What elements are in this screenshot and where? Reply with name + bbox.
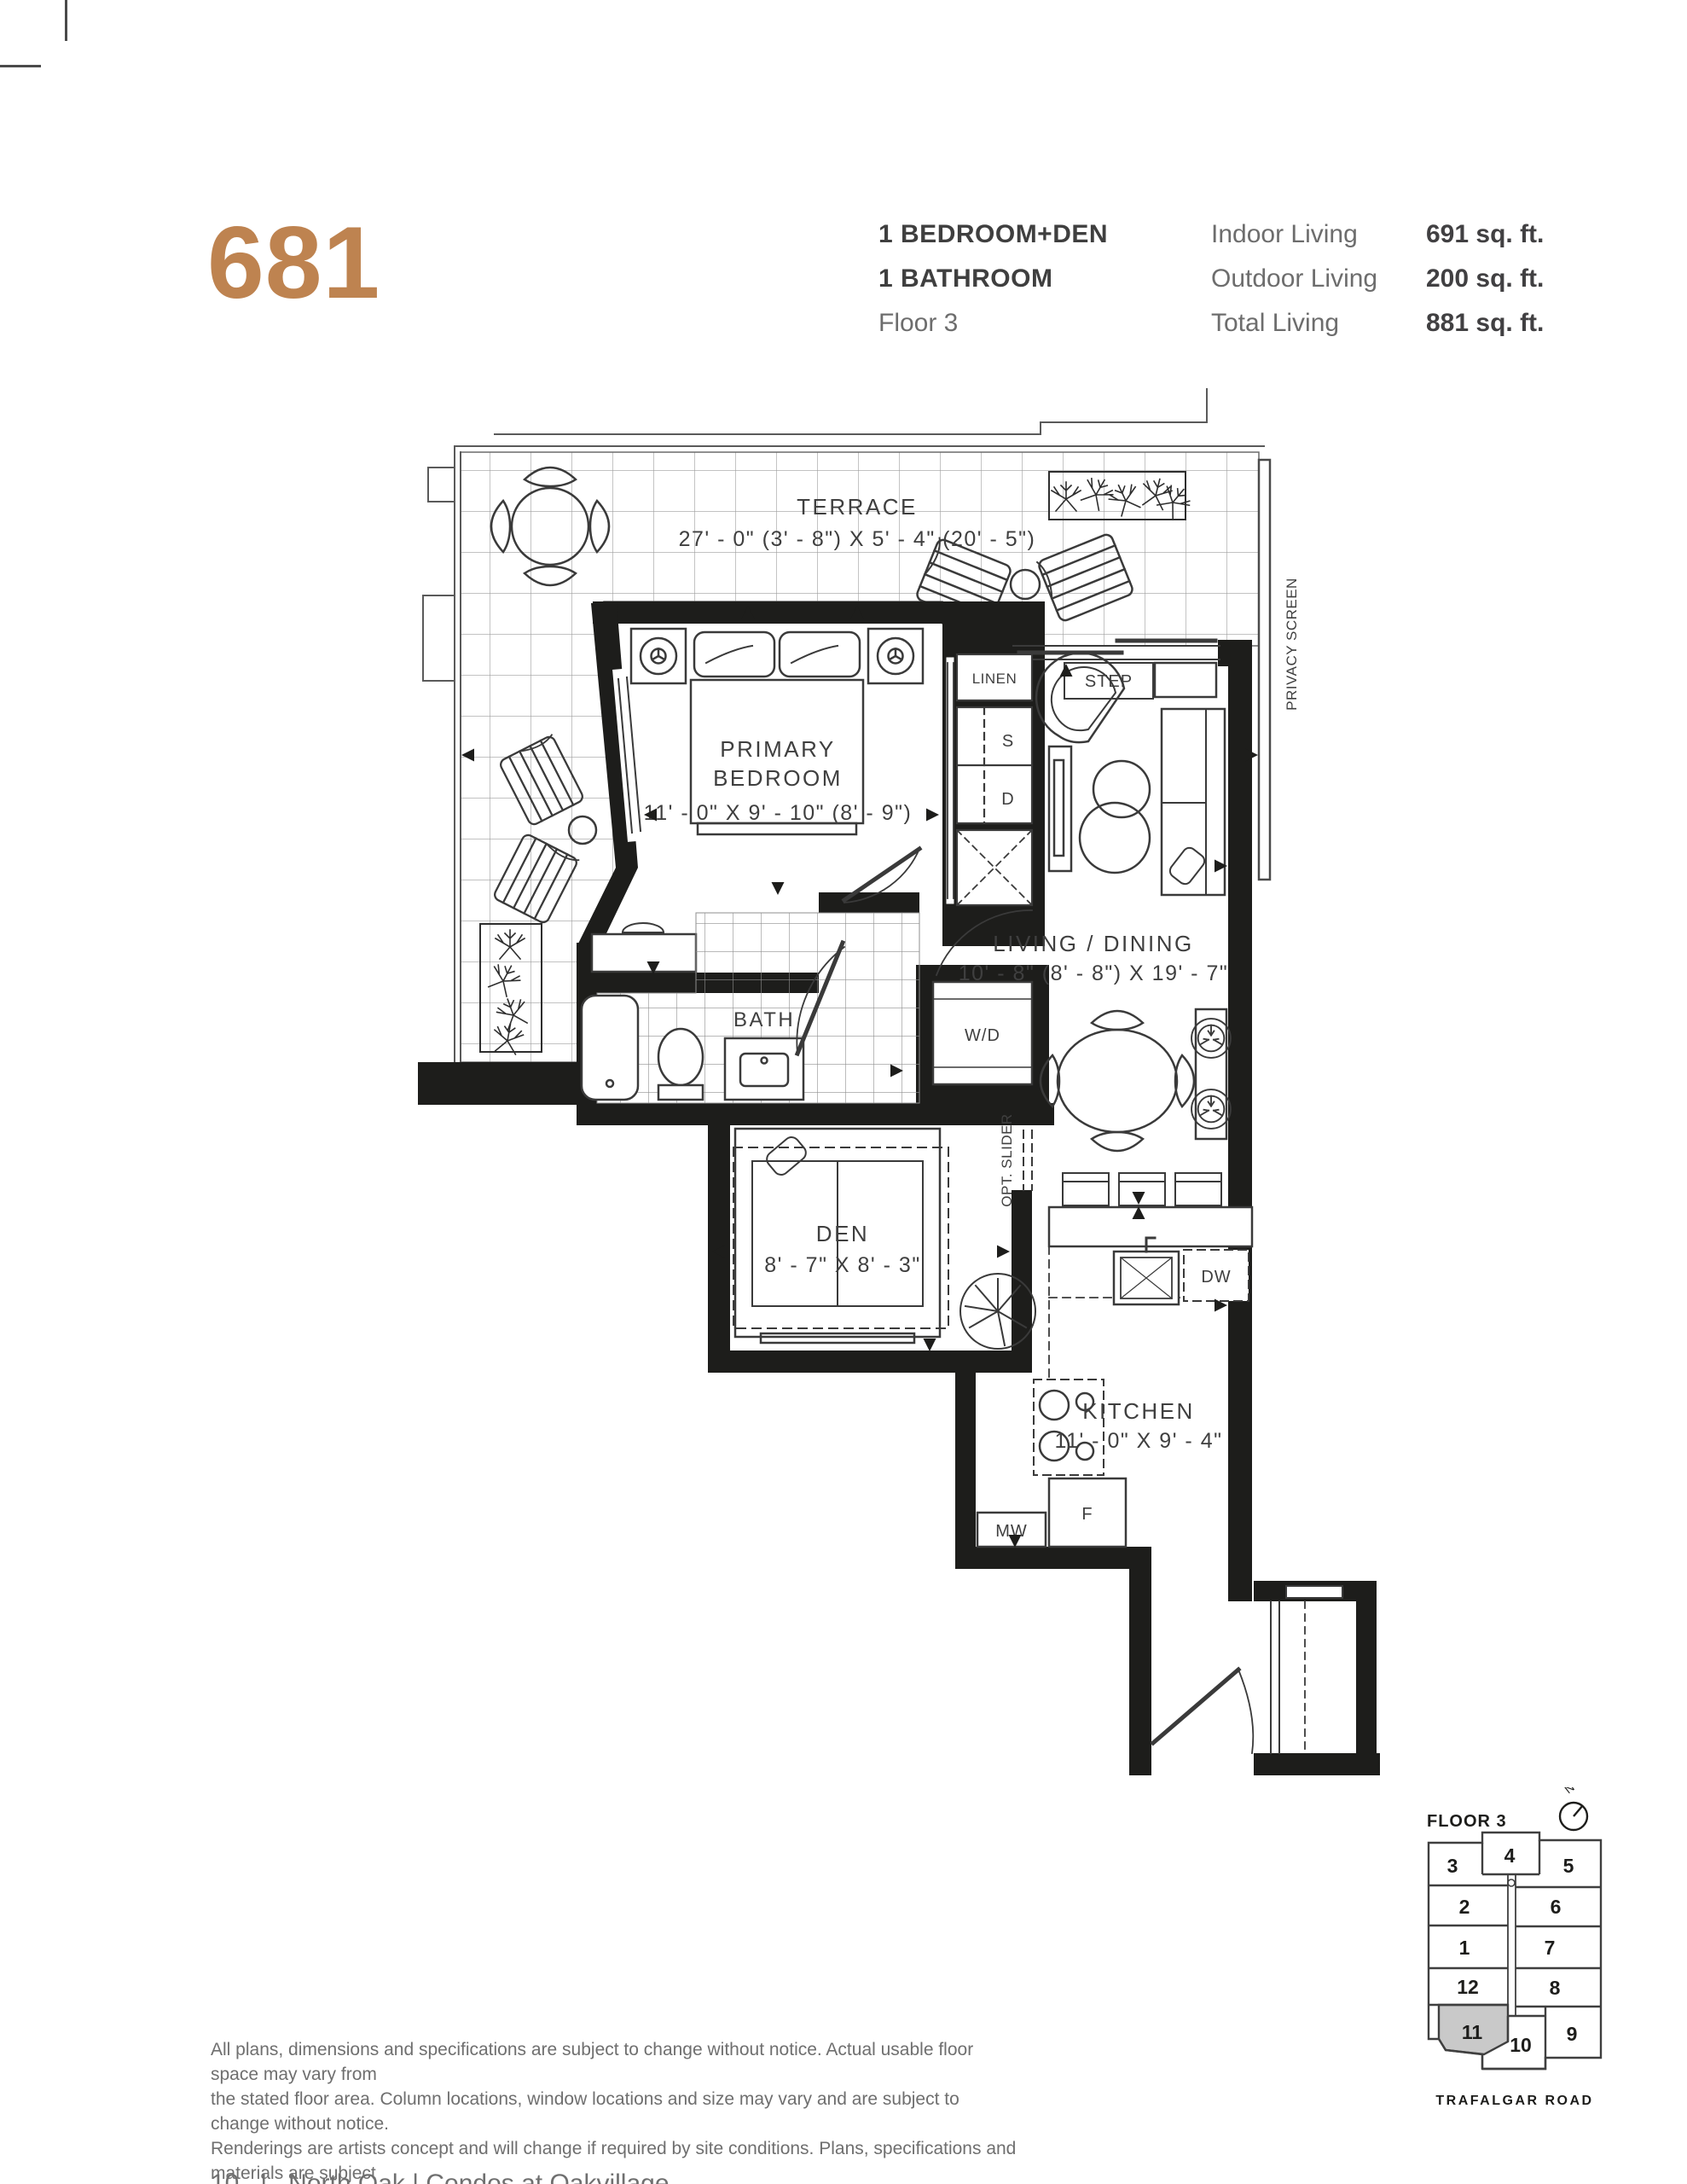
privacy-screen-label: PRIVACY SCREEN xyxy=(1284,578,1300,711)
plant-icon xyxy=(1191,1019,1231,1058)
sofa-pillow xyxy=(1168,845,1208,887)
den xyxy=(733,1129,1035,1349)
bedroom-dims: 11' - 0" X 9' - 10" (8' - 9") xyxy=(644,801,913,825)
keyplan: FLOOR 3 N 3 4 5 2 6 1 7 xyxy=(1403,1787,1659,2163)
north-arrow-icon xyxy=(1560,1803,1587,1830)
coffee-table xyxy=(1093,761,1150,817)
toilet-tank xyxy=(658,1085,703,1100)
unit-type-block: 1 BEDROOM+DEN 1 BATHROOM Floor 3 xyxy=(878,220,1186,353)
svg-text:3: 3 xyxy=(1447,1855,1458,1877)
svg-text:4: 4 xyxy=(1504,1844,1516,1867)
plant-icon xyxy=(1191,1089,1231,1129)
linen-label: LINEN xyxy=(972,671,1017,687)
disclaimer-line: All plans, dimensions and specifications… xyxy=(211,2037,1021,2087)
svg-text:2: 2 xyxy=(1459,1896,1470,1918)
side-table xyxy=(1155,663,1216,697)
svg-text:10: 10 xyxy=(1510,2034,1532,2056)
terrace-label: TERRACE xyxy=(797,494,918,520)
coffee-table xyxy=(1080,803,1150,873)
kitchen-dims: 11' - 0" X 9' - 4" xyxy=(1055,1429,1223,1453)
fridge-label: F xyxy=(1081,1505,1093,1524)
living-label: LIVING / DINING xyxy=(993,931,1193,956)
closet-s-label: S xyxy=(1002,732,1014,751)
lamp-icon xyxy=(641,638,676,674)
crop-mark-vertical xyxy=(65,0,67,41)
dw-label: DW xyxy=(1201,1268,1231,1287)
den-pillow xyxy=(764,1134,809,1177)
lamp-icon xyxy=(878,638,913,674)
stat-row-total: Total Living 881 sq. ft. xyxy=(1211,309,1569,353)
svg-text:8: 8 xyxy=(1550,1977,1561,1999)
stat-value: 200 sq. ft. xyxy=(1426,264,1544,293)
keyplan-road-label: TRAFALGAR ROAD xyxy=(1435,2094,1593,2108)
stat-label: Total Living xyxy=(1211,309,1339,337)
wd-label: W/D xyxy=(965,1026,1000,1045)
living-stats: Indoor Living 691 sq. ft. Outdoor Living… xyxy=(1211,220,1569,353)
toilet xyxy=(658,1029,703,1085)
crop-mark-horizontal xyxy=(0,65,41,67)
bar-stool xyxy=(1063,1173,1221,1205)
disclaimer-line: the stated floor area. Column locations,… xyxy=(211,2087,1021,2136)
bath-label: BATH xyxy=(733,1008,795,1031)
stat-row-indoor: Indoor Living 691 sq. ft. xyxy=(1211,220,1569,264)
svg-text:12: 12 xyxy=(1457,1976,1479,1998)
dresser-bowl xyxy=(623,923,664,932)
floorplan-page: 681 1 BEDROOM+DEN 1 BATHROOM Floor 3 Ind… xyxy=(0,0,1687,2184)
unit-floor: Floor 3 xyxy=(878,309,1186,353)
bed-pillow xyxy=(780,632,860,677)
kitchen-island xyxy=(1049,1207,1252,1246)
step-label: STEP xyxy=(1085,672,1133,691)
svg-text:9: 9 xyxy=(1567,2023,1578,2045)
entry-door xyxy=(1153,1670,1238,1743)
den-dims: 8' - 7" X 8' - 3" xyxy=(764,1253,920,1277)
bedroom-label-2: BEDROOM xyxy=(713,765,843,791)
dining-table xyxy=(1058,1030,1177,1132)
opt-slider-label: OPT. SLIDER xyxy=(999,1113,1015,1206)
svg-text:5: 5 xyxy=(1563,1855,1574,1877)
stat-row-outdoor: Outdoor Living 200 sq. ft. xyxy=(1211,264,1569,309)
living-dims: 10' - 8" (8' - 8") X 19' - 7" xyxy=(959,961,1229,985)
tv xyxy=(1054,760,1064,856)
floor-plan-drawing: PRIVACY SCREEN xyxy=(367,388,1433,1838)
terrace-dims: 27' - 0" (3' - 8") X 5' - 4" (20' - 5") xyxy=(679,527,1036,551)
living-dining xyxy=(1036,653,1231,1151)
privacy-screen-bar xyxy=(1259,460,1270,880)
stat-label: Indoor Living xyxy=(1211,220,1358,248)
svg-text:1: 1 xyxy=(1459,1937,1470,1959)
unit-type-line1: 1 BEDROOM+DEN xyxy=(878,220,1186,264)
unit-number: 681 xyxy=(207,212,380,314)
opt-slider-line xyxy=(1023,1130,1032,1190)
bedroom-label-1: PRIMARY xyxy=(720,736,836,762)
vanity xyxy=(725,1038,803,1100)
svg-text:11: 11 xyxy=(1462,2021,1483,2043)
svg-text:7: 7 xyxy=(1545,1937,1556,1959)
dresser xyxy=(592,934,696,972)
svg-text:6: 6 xyxy=(1551,1896,1562,1918)
bathtub xyxy=(582,996,638,1100)
den-label: DEN xyxy=(816,1221,869,1246)
stat-label: Outdoor Living xyxy=(1211,264,1377,293)
closet-column xyxy=(948,654,1032,905)
entry xyxy=(1153,1586,1342,1753)
den-shelf xyxy=(761,1333,914,1343)
unit-type-line2: 1 BATHROOM xyxy=(878,264,1186,309)
north-label: N xyxy=(1562,1787,1577,1796)
stat-value: 691 sq. ft. xyxy=(1426,220,1544,249)
keyplan-floor-label: FLOOR 3 xyxy=(1427,1812,1507,1831)
disclaimer: All plans, dimensions and specifications… xyxy=(211,2037,1021,2184)
closet-d-label: D xyxy=(1001,790,1014,809)
tv-console xyxy=(1049,746,1071,871)
page-footer: 10 | North Oak | Condos at Oakvillage xyxy=(211,2169,670,2184)
bed-pillow xyxy=(694,632,774,677)
kitchen-label: KITCHEN xyxy=(1082,1398,1195,1424)
stat-value: 881 sq. ft. xyxy=(1426,309,1544,338)
keyplan-unit-numbers: 3 4 5 2 6 1 7 12 8 11 10 9 xyxy=(1447,1844,1578,2056)
